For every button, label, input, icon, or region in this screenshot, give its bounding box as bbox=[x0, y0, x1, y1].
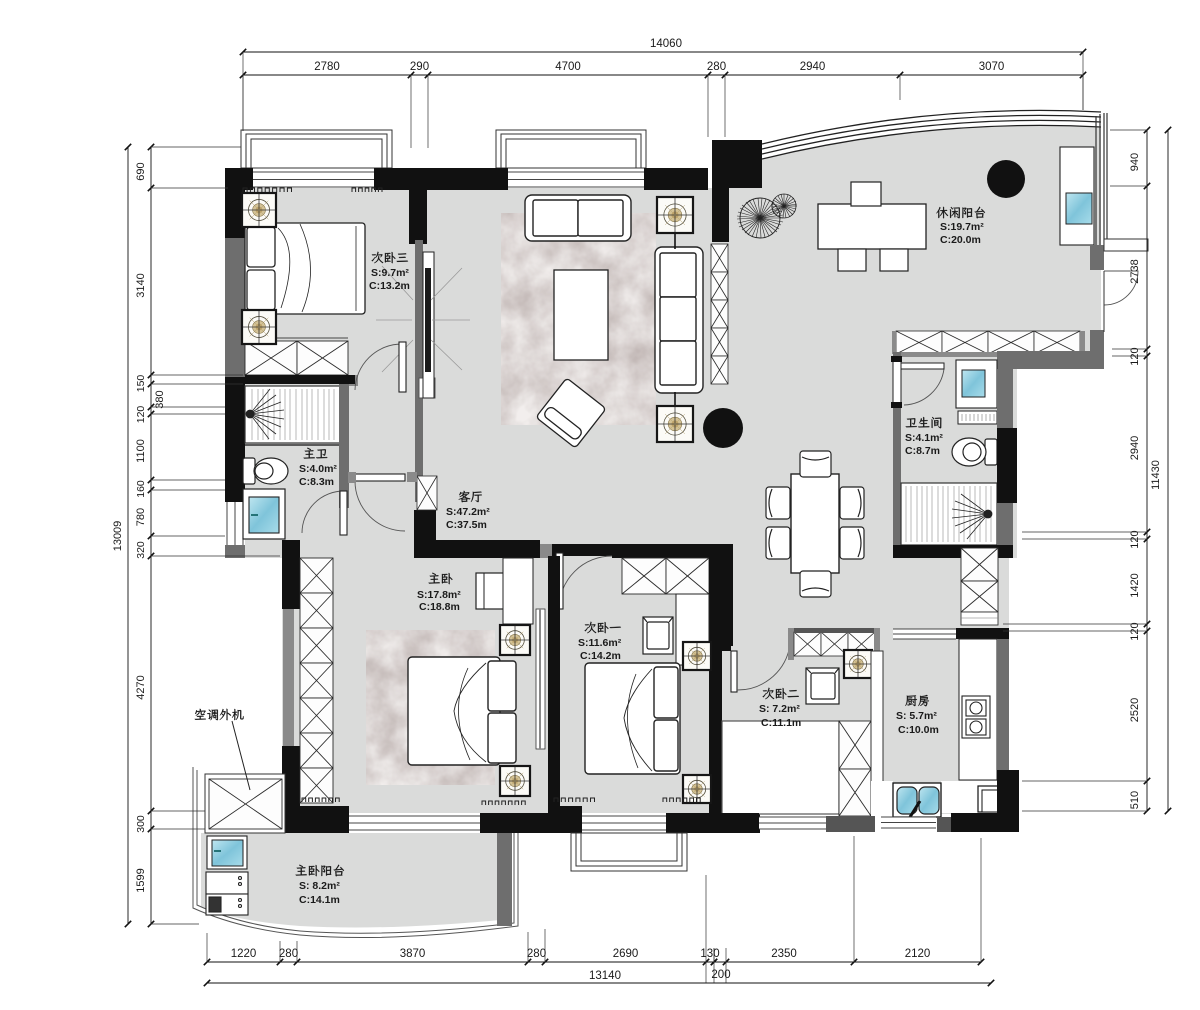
svg-text:C:14.2m: C:14.2m bbox=[580, 650, 621, 662]
svg-text:C:11.1m: C:11.1m bbox=[761, 717, 801, 729]
svg-text:1220: 1220 bbox=[231, 948, 257, 960]
svg-text:S:4.1m²: S:4.1m² bbox=[905, 432, 943, 444]
svg-text:380: 380 bbox=[154, 390, 166, 408]
svg-text:C:37.5m: C:37.5m bbox=[446, 519, 487, 531]
svg-text:11430: 11430 bbox=[1150, 460, 1162, 490]
svg-text:120: 120 bbox=[1129, 347, 1141, 365]
svg-text:2120: 2120 bbox=[905, 948, 931, 960]
svg-text:940: 940 bbox=[1129, 153, 1141, 171]
svg-text:2780: 2780 bbox=[314, 61, 340, 73]
svg-text:280: 280 bbox=[707, 61, 726, 73]
svg-text:690: 690 bbox=[135, 162, 147, 180]
svg-text:2520: 2520 bbox=[1129, 698, 1141, 722]
svg-text:280: 280 bbox=[527, 948, 546, 960]
svg-text:120: 120 bbox=[135, 406, 147, 424]
svg-text:2940: 2940 bbox=[800, 61, 826, 73]
svg-text:2690: 2690 bbox=[613, 948, 639, 960]
svg-text:120: 120 bbox=[1129, 622, 1141, 640]
svg-text:13009: 13009 bbox=[112, 521, 124, 552]
svg-text:120: 120 bbox=[1129, 530, 1141, 548]
svg-text:S:4.0m²: S:4.0m² bbox=[299, 463, 337, 475]
svg-text:780: 780 bbox=[135, 508, 147, 526]
svg-text:S: 7.2m²: S: 7.2m² bbox=[759, 703, 800, 715]
svg-text:130: 130 bbox=[700, 948, 719, 960]
svg-text:1420: 1420 bbox=[1129, 573, 1141, 597]
svg-text:C:20.0m: C:20.0m bbox=[940, 234, 981, 246]
svg-text:510: 510 bbox=[1129, 791, 1141, 809]
svg-text:2350: 2350 bbox=[771, 948, 797, 960]
svg-text:14060: 14060 bbox=[650, 38, 682, 50]
svg-text:300: 300 bbox=[135, 815, 147, 833]
svg-text:C:18.8m: C:18.8m bbox=[419, 601, 460, 613]
svg-text:290: 290 bbox=[410, 61, 429, 73]
svg-text:S:17.8m²: S:17.8m² bbox=[417, 589, 461, 601]
svg-text:13140: 13140 bbox=[589, 970, 621, 982]
svg-text:1599: 1599 bbox=[135, 868, 147, 892]
svg-text:2738: 2738 bbox=[1129, 259, 1141, 283]
svg-text:C:8.3m: C:8.3m bbox=[299, 476, 334, 488]
svg-text:1100: 1100 bbox=[135, 439, 147, 463]
svg-text:C:13.2m: C:13.2m bbox=[369, 280, 410, 292]
svg-text:S:47.2m²: S:47.2m² bbox=[446, 506, 490, 518]
svg-text:C:8.7m: C:8.7m bbox=[905, 445, 940, 457]
svg-text:S: 8.2m²: S: 8.2m² bbox=[299, 880, 340, 892]
svg-text:C:10.0m: C:10.0m bbox=[898, 724, 939, 736]
svg-text:200: 200 bbox=[711, 969, 730, 981]
svg-text:S:9.7m²: S:9.7m² bbox=[371, 267, 409, 279]
svg-text:320: 320 bbox=[135, 541, 147, 559]
svg-text:3070: 3070 bbox=[979, 61, 1005, 73]
svg-text:S:11.6m²: S:11.6m² bbox=[578, 637, 622, 649]
svg-text:150: 150 bbox=[135, 375, 147, 393]
svg-text:S:19.7m²: S:19.7m² bbox=[940, 221, 984, 233]
svg-text:4700: 4700 bbox=[555, 61, 581, 73]
svg-text:2940: 2940 bbox=[1129, 436, 1141, 460]
svg-text:3870: 3870 bbox=[400, 948, 426, 960]
svg-text:4270: 4270 bbox=[135, 675, 147, 699]
svg-text:3140: 3140 bbox=[135, 273, 147, 297]
svg-text:280: 280 bbox=[279, 948, 298, 960]
svg-text:160: 160 bbox=[135, 480, 147, 498]
svg-text:C:14.1m: C:14.1m bbox=[299, 894, 340, 906]
svg-text:S: 5.7m²: S: 5.7m² bbox=[896, 710, 937, 722]
